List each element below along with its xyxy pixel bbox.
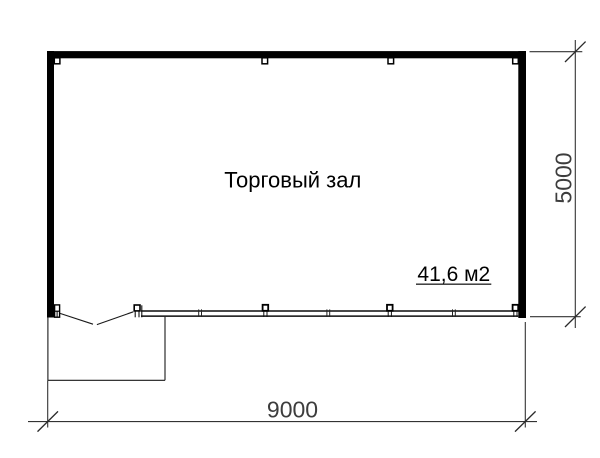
svg-text:41,6 м2: 41,6 м2 — [417, 263, 490, 286]
svg-text:9000: 9000 — [267, 396, 318, 422]
svg-text:5000: 5000 — [551, 152, 577, 203]
svg-text:Торговый зал: Торговый зал — [224, 168, 361, 193]
